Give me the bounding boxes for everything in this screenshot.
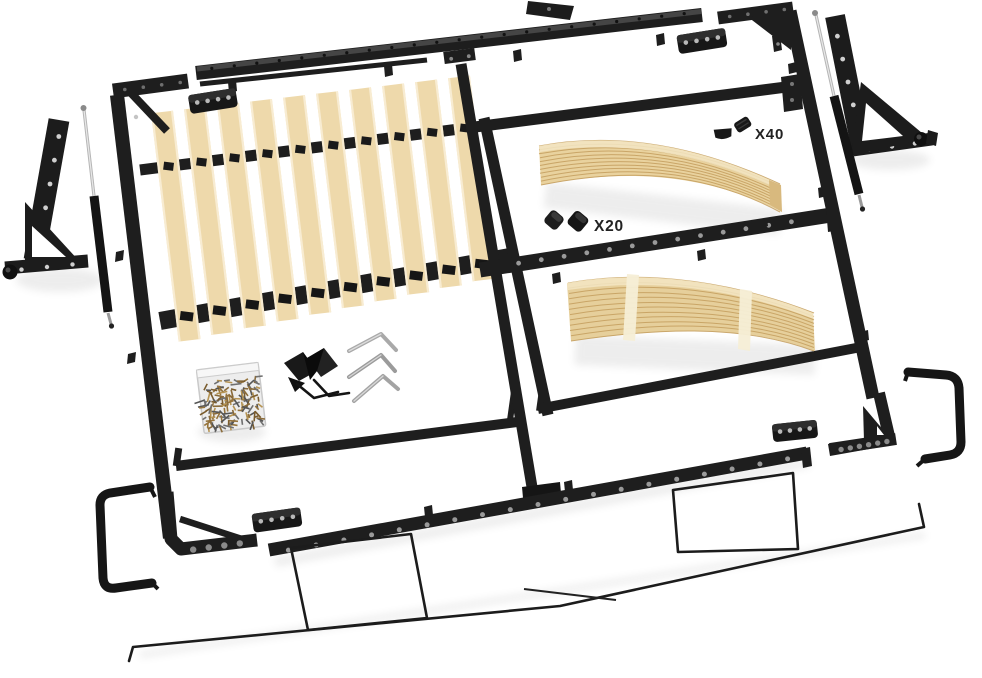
svg-text:X40: X40 [755, 126, 784, 143]
svg-text:X20: X20 [594, 218, 624, 235]
